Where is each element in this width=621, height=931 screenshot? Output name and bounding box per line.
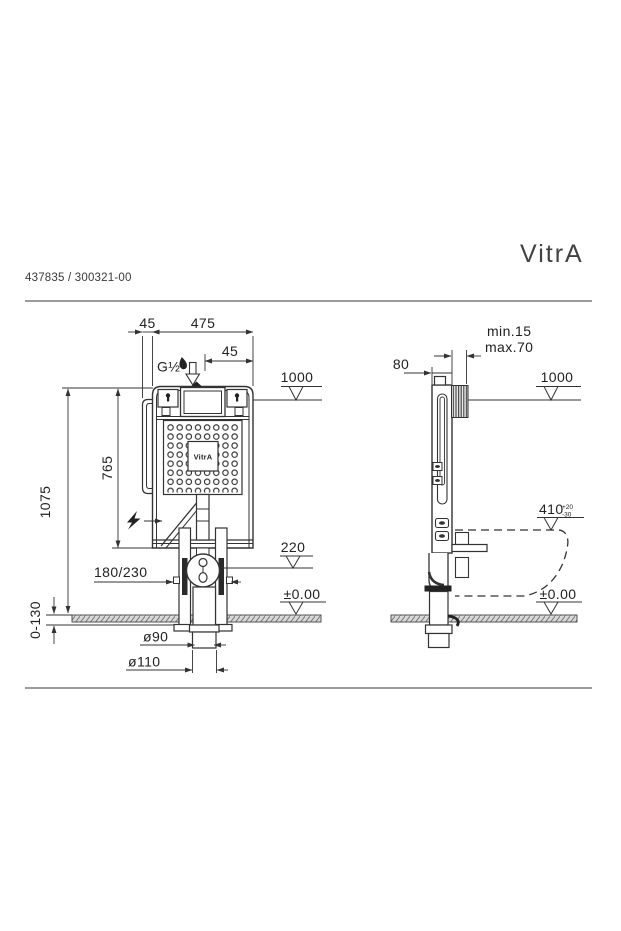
fill-hose <box>143 400 153 494</box>
dim-wall-max-label: max.70 <box>485 339 533 355</box>
dim-tank-height-label: 765 <box>99 456 115 481</box>
dim-fixing-spacing-label: 180/230 <box>94 564 147 580</box>
dim-frame-depth-label: 80 <box>393 356 409 372</box>
level-triangle-icon <box>544 602 558 614</box>
level-flush-bend-label: 220 <box>281 539 306 555</box>
flush-pipe <box>197 495 210 541</box>
level-marker-1000-front: 1000 <box>253 369 322 400</box>
dim-pan-outlet-tol-plus-label: +20 <box>562 504 573 511</box>
outlet-pipe <box>190 587 220 648</box>
tank-label: VitrA <box>194 453 213 462</box>
level-triangle-icon <box>289 387 303 401</box>
technical-drawing-canvas: VitrA <box>0 0 621 931</box>
front-view: VitrA <box>27 315 326 673</box>
outlet-flange <box>187 548 220 587</box>
level-floor-label: ±0.00 <box>540 586 577 602</box>
dim-wall-min-label: min.15 <box>487 323 531 339</box>
floor-line-side <box>391 615 577 622</box>
dim-outlet-inner-label: ø90 <box>143 629 168 645</box>
datasheet-page: 437835 / 300321-00 VitrA <box>0 0 621 931</box>
inlet-thread-label: G½ <box>157 359 180 375</box>
level-floor-label: ±0.00 <box>284 586 321 602</box>
water-inlet: G½ <box>157 357 202 387</box>
dim-frame-height-label: 1075 <box>37 486 53 519</box>
level-marker-410: 410 +20 -30 <box>537 501 584 530</box>
level-triangle-icon <box>286 556 300 568</box>
left-foot <box>174 625 191 632</box>
flush-bend-pipe <box>425 553 459 648</box>
level-triangle-icon <box>289 602 303 614</box>
lightning-icon <box>127 511 141 530</box>
water-drop-icon <box>179 357 187 369</box>
wall-fixing-plate <box>452 386 469 418</box>
dim-pan-outlet-height-label: 410 <box>539 501 564 517</box>
level-top-label: 1000 <box>281 369 314 385</box>
dim-width-label: 475 <box>191 315 216 331</box>
access-panel <box>181 388 226 417</box>
level-marker-zero-front: ±0.00 <box>280 586 326 614</box>
level-top-label: 1000 <box>541 369 574 385</box>
frame-column <box>432 377 468 554</box>
inlet-arrow-icon <box>190 363 197 375</box>
dim-inlet-offset-label: 45 <box>222 343 238 359</box>
side-dimensions: 80 min.15 max.70 1000 410 +20 <box>393 323 584 614</box>
level-marker-zero-side: ±0.00 <box>536 586 582 614</box>
level-marker-1000-side: 1000 <box>468 369 581 400</box>
dim-outlet-outer-label: ø110 <box>128 654 160 670</box>
level-triangle-icon <box>544 387 558 401</box>
dim-floor-range-label: 0-130 <box>27 601 43 639</box>
perforated-panel: VitrA <box>164 421 243 495</box>
dim-offset-top-label: 45 <box>139 315 155 331</box>
side-view: 80 min.15 max.70 1000 410 +20 <box>391 323 584 648</box>
pan-fixing-arm <box>452 533 487 578</box>
level-triangle-icon <box>544 518 558 531</box>
